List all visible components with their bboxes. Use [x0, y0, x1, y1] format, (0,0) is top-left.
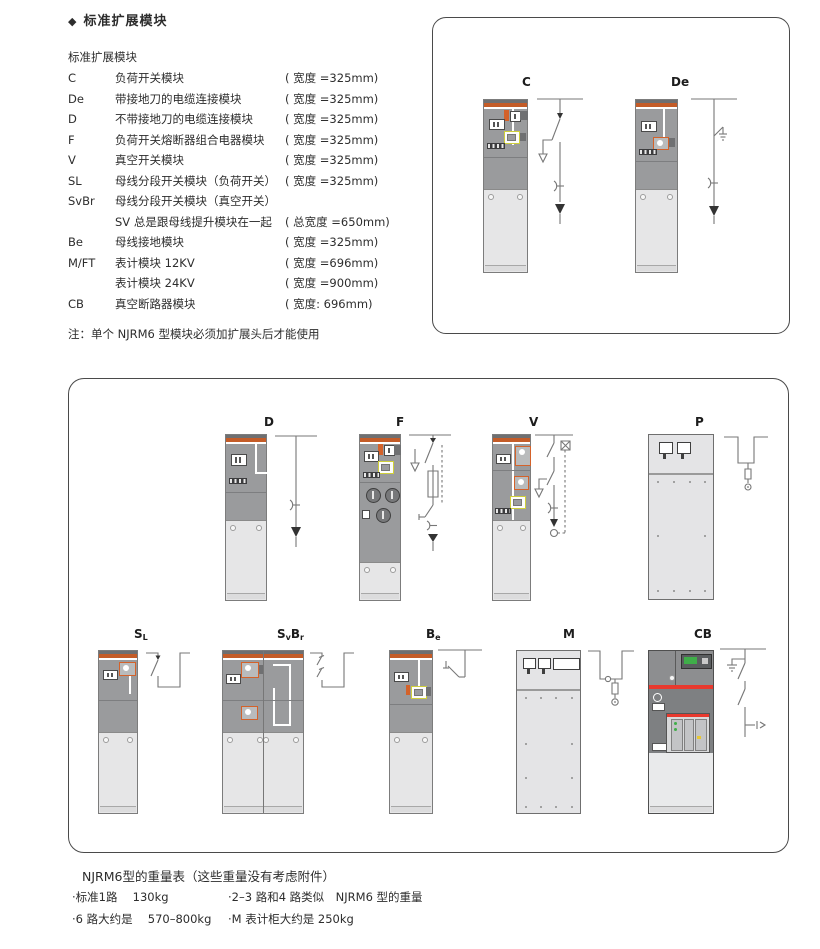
cabinet-detail	[487, 143, 505, 149]
cabinet-detail	[406, 685, 410, 695]
cabinet-detail	[515, 446, 531, 466]
cabinet-detail	[637, 265, 676, 271]
cabinet-detail	[394, 672, 409, 682]
cabinet-detail	[390, 660, 432, 732]
cabinet-detail	[273, 688, 275, 726]
cabinet-be	[389, 650, 433, 814]
cabinet-detail	[229, 478, 247, 484]
cabinet-detail	[520, 111, 528, 120]
cabinet-svbr	[222, 650, 304, 814]
single-line-diagram-cb-icon	[717, 641, 769, 776]
cabinet-detail	[293, 737, 299, 743]
cabinet-detail	[657, 535, 659, 537]
cabinet-de	[635, 99, 678, 273]
cabinet-detail	[360, 444, 400, 562]
single-line-diagram-be-icon	[435, 641, 485, 693]
cabinet-detail	[675, 651, 676, 685]
cabinet-detail	[640, 194, 646, 200]
module-width: ( 宽度 =325mm)	[285, 235, 378, 249]
cabinet-detail	[667, 714, 709, 717]
cabinet-detail	[663, 454, 666, 459]
cabinet-detail	[494, 593, 529, 599]
module-width: ( 宽度 =325mm)	[285, 92, 378, 106]
cabinet-detail	[484, 189, 527, 272]
module-code: SL	[68, 174, 115, 188]
cabinet-detail	[689, 590, 691, 592]
cabinet-detail	[227, 593, 265, 599]
module-row: CB真空断路器模块( 宽度: 696mm)	[68, 296, 428, 312]
figure-label-sub: r	[300, 633, 304, 642]
cabinet-detail	[488, 194, 494, 200]
cabinet-detail	[671, 719, 683, 751]
module-name: 母线分段开关模块（真空开关）	[115, 193, 285, 209]
module-row: Be母线接地模块( 宽度 =325mm)	[68, 234, 428, 250]
cabinet-detail	[657, 481, 659, 483]
cabinet-detail	[681, 454, 684, 459]
figure-label-m: M	[563, 627, 575, 641]
cabinet-detail	[484, 109, 527, 189]
figure-label-be: Be	[426, 627, 441, 642]
figure-label-text: B	[291, 627, 300, 641]
cabinet-detail	[527, 669, 530, 674]
diamond-bullet-icon: ◆	[68, 15, 77, 28]
figure-label-p: P	[695, 415, 704, 429]
module-width: ( 宽度 =325mm)	[285, 133, 378, 147]
figure-label-svbr: SvBr	[277, 627, 304, 642]
cabinet-detail	[362, 510, 370, 519]
cabinet-detail	[636, 161, 677, 162]
cabinet-detail	[704, 590, 706, 592]
module-row: D不带接地刀的电缆连接模块( 宽度 =325mm)	[68, 111, 428, 127]
module-code: SvBr	[68, 194, 115, 208]
cabinet-detail	[684, 719, 694, 751]
cabinet-detail	[231, 454, 247, 466]
cabinet-detail	[695, 719, 707, 751]
cabinet-detail	[636, 189, 677, 272]
cabinet-detail	[669, 138, 675, 147]
module-row: De带接地刀的电缆连接模块( 宽度 =325mm)	[68, 91, 428, 107]
figure-label-f: F	[396, 415, 404, 429]
figure-label-text: S	[277, 627, 286, 641]
module-row: SvBr母线分段开关模块（真空开关）	[68, 193, 428, 209]
cabinet-detail	[673, 590, 675, 592]
cabinet-detail	[689, 481, 691, 483]
page-title: ◆标准扩展模块	[68, 10, 167, 29]
cabinet-detail	[540, 697, 542, 699]
cabinet-detail	[394, 445, 401, 455]
usage-note: 注：单个 NJRM6 型模块必须加扩展头后才能使用	[68, 326, 320, 342]
cabinet-detail	[636, 109, 677, 189]
module-width: ( 总宽度 =650mm)	[285, 215, 390, 229]
breaker-assembly	[666, 713, 710, 753]
module-row: M/FT表计模块 12KV( 宽度 =696mm)	[68, 255, 428, 271]
cabinet-p	[648, 434, 714, 600]
module-width: ( 宽度 =325mm)	[285, 174, 378, 188]
cabinet-detail	[493, 520, 530, 600]
cabinet-detail	[226, 674, 241, 684]
cabinet-detail	[241, 706, 258, 720]
cabinet-detail	[256, 525, 262, 531]
single-line-diagram-m-icon	[585, 641, 637, 711]
figure-label-de: De	[671, 75, 689, 89]
cabinet-detail	[391, 806, 431, 812]
module-row: SV 总是跟母线提升模块在一起( 总宽度 =650mm)	[68, 214, 428, 230]
figure-label-text: S	[134, 627, 143, 641]
cabinet-detail	[495, 508, 511, 514]
single-line-diagram-svbr-icon	[307, 641, 357, 703]
cabinet-detail	[525, 743, 527, 745]
cabinet-detail	[364, 567, 370, 573]
module-code: De	[68, 92, 115, 106]
module-name: 真空开关模块	[115, 152, 285, 168]
cabinet-detail	[571, 697, 573, 699]
cabinet-detail	[385, 488, 400, 503]
cabinet-detail	[418, 660, 420, 686]
module-row: 表计模块 24KV( 宽度 =900mm)	[68, 275, 428, 291]
module-row: C负荷开关模块( 宽度 =325mm)	[68, 70, 428, 86]
figure-label-c: C	[522, 75, 531, 89]
cabinet-detail	[542, 669, 545, 674]
module-code: F	[68, 133, 115, 147]
cabinet-detail	[127, 737, 133, 743]
module-code: V	[68, 153, 115, 167]
cabinet-detail	[504, 131, 520, 144]
page-title-text: 标准扩展模块	[83, 14, 167, 29]
cabinet-detail	[657, 590, 659, 592]
panel-bottom-figures: D F	[68, 378, 789, 853]
module-code: CB	[68, 297, 115, 311]
single-line-diagram-d-icon	[271, 427, 321, 597]
cabinet-detail	[517, 194, 523, 200]
cabinet-detail	[677, 442, 691, 454]
weight-item: ·2–3 路和4 路类似 NJRM6 型的重量	[228, 890, 423, 904]
cabinet-detail	[273, 724, 290, 726]
module-width: ( 宽度: 696mm)	[285, 297, 373, 311]
cabinet-detail	[525, 806, 527, 808]
cabinet-detail	[390, 704, 432, 705]
cabinet-detail	[659, 442, 673, 454]
cabinet-detail	[649, 651, 713, 685]
module-row: F负荷开关熔断器组合电器模块( 宽度 =325mm)	[68, 132, 428, 148]
module-width: ( 宽度 =325mm)	[285, 153, 378, 167]
cabinet-detail	[540, 806, 542, 808]
cabinet-detail	[361, 593, 399, 599]
cabinet-detail	[366, 488, 381, 503]
cabinet-detail	[226, 444, 266, 520]
cabinet-detail	[525, 697, 527, 699]
cabinet-detail	[649, 435, 713, 475]
cabinet-detail	[378, 461, 394, 474]
module-width: ( 宽度 =325mm)	[285, 112, 378, 126]
module-name: SV 总是跟母线提升模块在一起	[115, 214, 285, 230]
cabinet-detail	[255, 444, 257, 473]
cabinet-detail	[520, 133, 526, 141]
cabinet-detail	[485, 265, 526, 271]
cabinet-detail	[489, 119, 505, 130]
cabinet-detail	[571, 743, 573, 745]
cabinet-detail	[517, 651, 580, 691]
cabinet-detail	[538, 658, 551, 669]
cabinet-detail	[497, 525, 503, 531]
meter-display	[553, 658, 580, 670]
figure-label-sl: SL	[134, 627, 148, 642]
weight-item: ·标准1路 130kg	[72, 889, 228, 905]
module-code: Be	[68, 235, 115, 249]
figure-label-cb: CB	[694, 627, 712, 641]
cabinet-detail	[227, 737, 233, 743]
cabinet-detail	[653, 693, 662, 702]
relay-screen	[684, 657, 697, 664]
cabinet-detail	[422, 737, 428, 743]
single-line-diagram-sl-icon	[143, 641, 193, 703]
module-name: 负荷开关模块	[115, 70, 285, 86]
cabinet-detail	[652, 703, 665, 711]
cabinet-detail	[510, 496, 526, 509]
cabinet-sl	[98, 650, 138, 814]
single-line-diagram-v-icon	[531, 427, 586, 567]
cabinet-detail	[119, 662, 136, 676]
cabinet-detail	[226, 492, 266, 493]
cabinet-detail	[673, 481, 675, 483]
cabinet-detail	[674, 722, 677, 725]
cabinet-detail	[360, 562, 400, 600]
cabinet-detail	[571, 777, 573, 779]
cabinet-detail	[376, 508, 391, 523]
weights-heading: NJRM6型的重量表（这些重量没有考虑附件）	[82, 866, 335, 885]
cabinet-cb	[648, 650, 714, 814]
cabinet-detail	[263, 651, 264, 813]
cabinet-detail	[667, 194, 673, 200]
module-name: 不带接地刀的电缆连接模块	[115, 111, 285, 127]
cabinet-detail	[650, 806, 712, 812]
cabinet-detail	[390, 567, 396, 573]
cabinet-v	[492, 434, 531, 601]
module-row: V真空开关模块( 宽度 =325mm)	[68, 152, 428, 168]
module-name: 母线分段开关模块（负荷开关）	[115, 173, 285, 189]
module-width: ( 宽度 =900mm)	[285, 276, 378, 290]
cabinet-detail	[649, 753, 713, 813]
cabinet-detail	[99, 700, 137, 701]
cabinet-detail	[704, 535, 706, 537]
cabinet-detail	[520, 525, 526, 531]
weight-item: ·M 表计柜大约是 250kg	[228, 912, 354, 926]
cabinet-detail	[103, 737, 109, 743]
cabinet-detail	[103, 670, 118, 680]
single-line-diagram-f-icon	[405, 427, 455, 562]
cabinet-detail	[555, 697, 557, 699]
module-code: M/FT	[68, 256, 115, 270]
module-row: SL母线分段开关模块（负荷开关）( 宽度 =325mm)	[68, 173, 428, 189]
cabinet-detail	[273, 664, 290, 666]
single-line-diagram-p-icon	[721, 427, 771, 502]
module-width: ( 宽度 =325mm)	[285, 71, 378, 85]
cabinet-detail	[484, 157, 527, 158]
cabinet-detail	[241, 662, 259, 678]
cabinet-detail	[390, 732, 432, 813]
cabinet-detail	[702, 658, 708, 664]
cabinet-f	[359, 434, 401, 601]
cabinet-detail	[555, 806, 557, 808]
cabinet-detail	[426, 687, 431, 696]
page: ◆标准扩展模块 标准扩展模块 C负荷开关模块( 宽度 =325mm) De带接地…	[0, 0, 820, 949]
cabinet-detail	[289, 664, 291, 726]
module-code: C	[68, 71, 115, 85]
cabinet-detail	[663, 109, 665, 139]
cabinet-c	[483, 99, 528, 273]
cabinet-detail	[363, 472, 380, 478]
weights-line: ·6 路大约是 570–800kg·M 表计柜大约是 250kg	[72, 911, 552, 927]
protection-relay-display	[681, 654, 712, 669]
weights-line: ·标准1路 130kg·2–3 路和4 路类似 NJRM6 型的重量	[72, 889, 552, 905]
cabinet-detail	[493, 444, 530, 520]
cabinet-m	[516, 650, 581, 814]
cabinet-detail	[99, 732, 137, 813]
cabinet-detail	[697, 736, 701, 739]
cabinet-detail	[493, 470, 530, 471]
cabinet-detail	[230, 525, 236, 531]
cabinet-detail	[639, 149, 657, 155]
cabinet-detail	[394, 737, 400, 743]
cabinet-detail	[411, 686, 427, 699]
cabinet-detail	[255, 472, 267, 474]
cabinet-detail	[523, 658, 536, 669]
module-name: 表计模块 24KV	[115, 275, 285, 291]
cabinet-detail	[525, 777, 527, 779]
module-list-heading: 标准扩展模块	[68, 49, 137, 65]
cabinet-detail	[100, 806, 136, 812]
single-line-diagram-c-icon	[531, 90, 586, 260]
cabinet-detail	[669, 675, 675, 681]
cabinet-detail	[641, 121, 657, 132]
panel-top-figures: C	[432, 17, 790, 334]
cabinet-detail	[364, 451, 379, 462]
module-width: ( 宽度 =696mm)	[285, 256, 378, 270]
single-line-diagram-de-icon	[685, 90, 740, 260]
cabinet-detail	[226, 520, 266, 600]
weight-item: ·6 路大约是 570–800kg	[72, 911, 228, 927]
module-name: 母线接地模块	[115, 234, 285, 250]
cabinet-detail	[704, 481, 706, 483]
cabinet-detail	[496, 454, 511, 464]
cabinet-detail	[649, 689, 713, 753]
cabinet-detail	[99, 660, 137, 732]
cabinet-d	[225, 434, 267, 601]
cabinet-detail	[514, 476, 529, 490]
cabinet-detail	[674, 728, 677, 731]
cabinet-detail	[360, 482, 400, 483]
module-name: 真空断路器模块	[115, 296, 285, 312]
module-name: 负荷开关熔断器组合电器模块	[115, 132, 285, 148]
cabinet-detail	[571, 806, 573, 808]
module-name: 带接地刀的电缆连接模块	[115, 91, 285, 107]
module-name: 表计模块 12KV	[115, 255, 285, 271]
module-code: D	[68, 112, 115, 126]
figure-label-text: B	[426, 627, 435, 641]
